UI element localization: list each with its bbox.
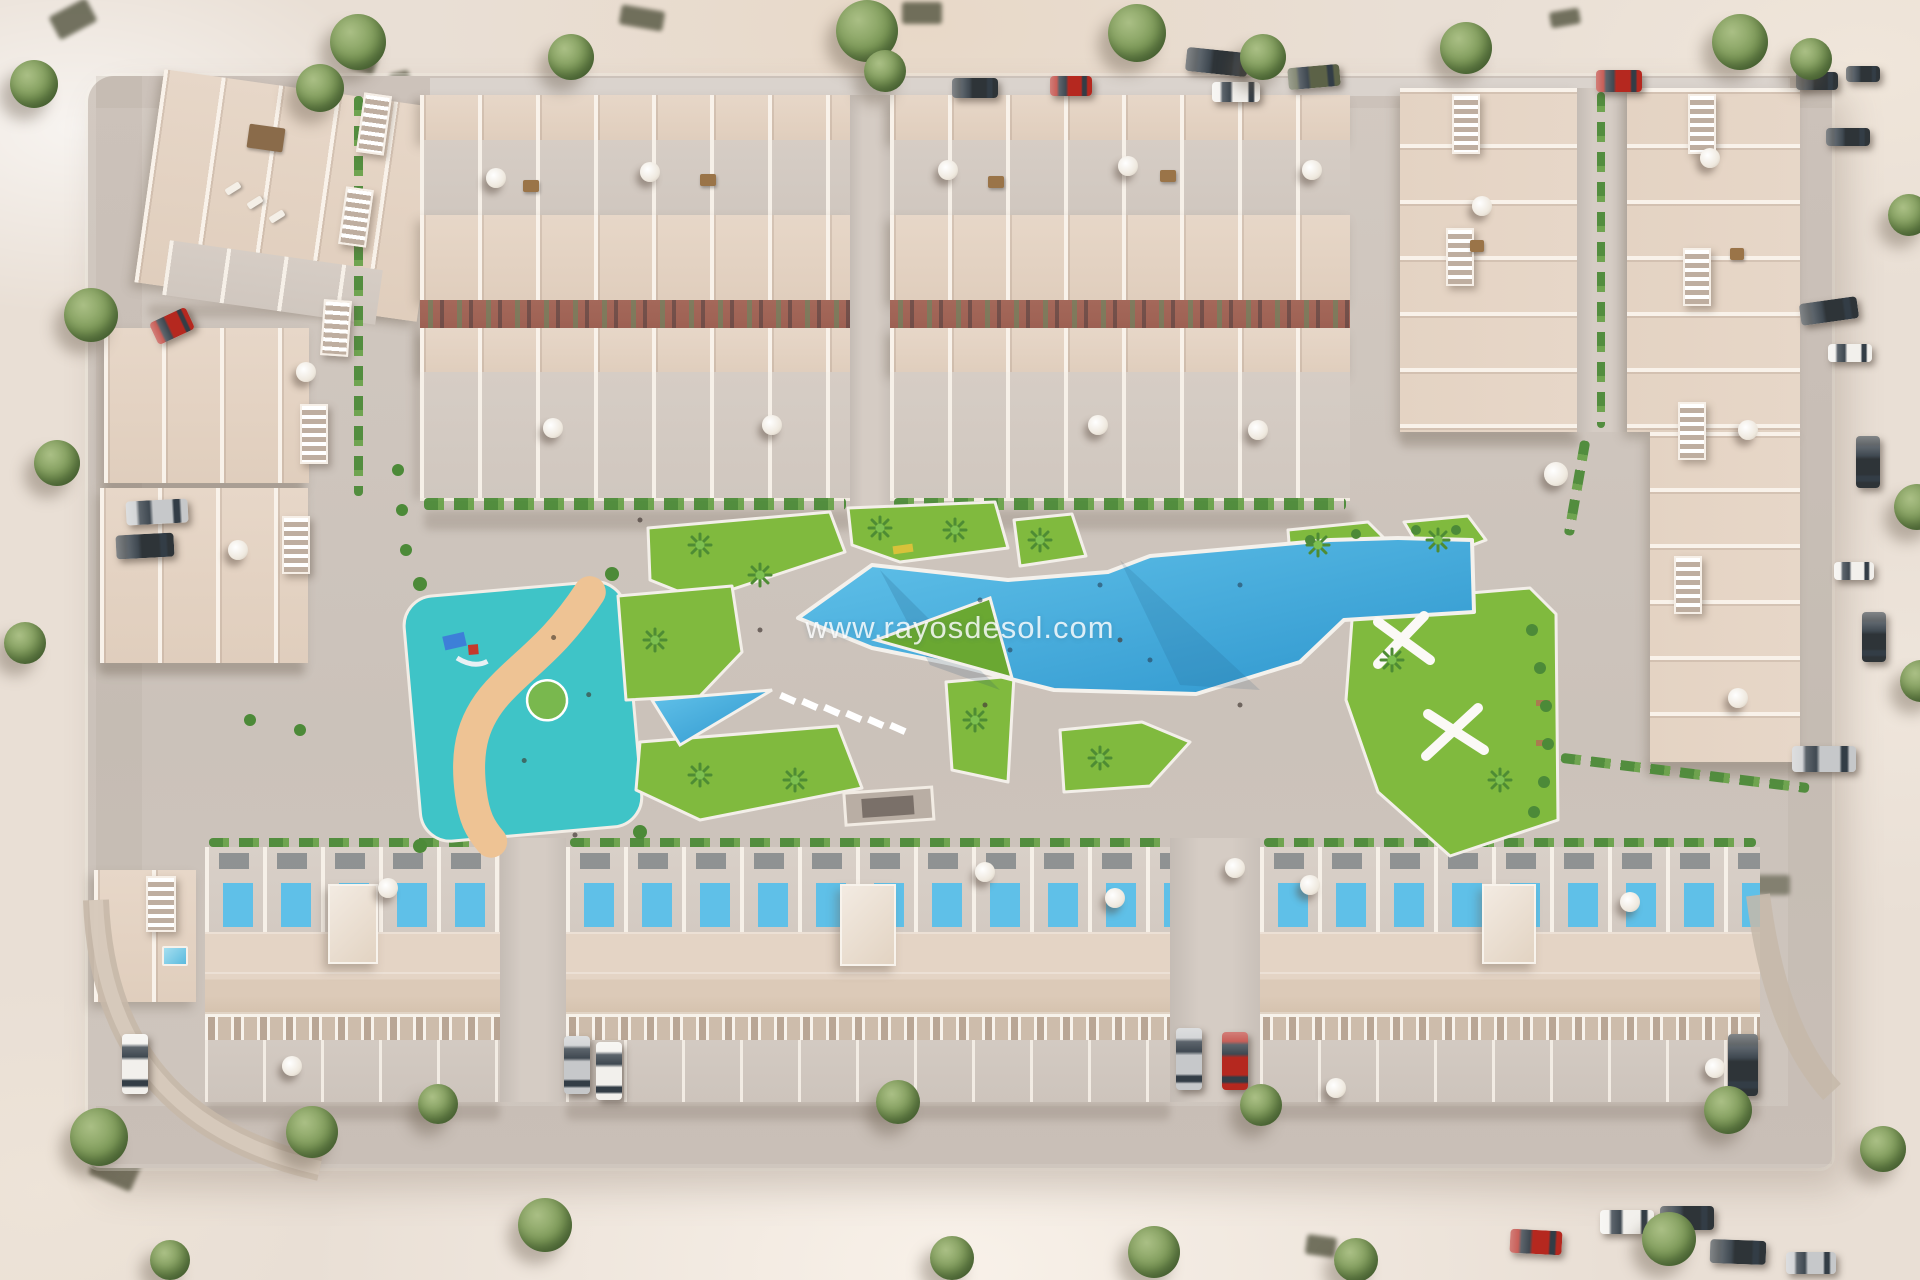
car [1509, 1229, 1562, 1256]
parasol [1700, 148, 1720, 168]
parasol [1300, 875, 1320, 895]
building-shadow [1260, 1102, 1760, 1120]
tree [864, 50, 906, 92]
tree [548, 34, 594, 80]
tree [1240, 34, 1286, 80]
townhouse-terrace-row [890, 140, 1350, 215]
car [1828, 344, 1872, 362]
car [1212, 82, 1260, 102]
parasol [1544, 462, 1568, 486]
car [115, 532, 174, 559]
car [1862, 612, 1886, 662]
roof-stairs [282, 516, 310, 574]
car [952, 78, 998, 98]
tree [1790, 38, 1832, 80]
car [1792, 746, 1856, 772]
roof-stairs [1683, 248, 1711, 306]
parasol [282, 1056, 302, 1076]
tree [10, 60, 58, 108]
parasol [975, 862, 995, 882]
car [596, 1042, 622, 1100]
tree [1334, 1238, 1378, 1280]
parasol [762, 415, 782, 435]
car [1826, 128, 1870, 146]
terrace-table [988, 176, 1004, 188]
tree [1642, 1212, 1696, 1266]
parasol [296, 362, 316, 382]
hedge-strip [1597, 92, 1605, 428]
terrace-table [1470, 240, 1484, 252]
car [1856, 436, 1880, 488]
car [125, 498, 188, 525]
roof-stairs [1446, 228, 1474, 286]
terrain-debris [1549, 8, 1581, 29]
roof-stairs [1678, 402, 1706, 460]
parasol [1326, 1078, 1346, 1098]
townhouse-roof-row [420, 328, 850, 372]
terrain-debris [619, 4, 666, 31]
car [122, 1034, 148, 1094]
parasol [1472, 196, 1492, 216]
tree [876, 1080, 920, 1124]
stair-tower [328, 884, 378, 964]
tree [418, 1084, 458, 1124]
car [1596, 70, 1642, 92]
car [1846, 66, 1880, 82]
roof-stairs [1688, 94, 1716, 154]
carport-strip [205, 1040, 500, 1102]
tree [1860, 1126, 1906, 1172]
car [1050, 76, 1092, 96]
parasol [1738, 420, 1758, 440]
parasol [1620, 892, 1640, 912]
car [1834, 562, 1874, 580]
parasol [378, 878, 398, 898]
terrace-table [700, 174, 716, 186]
townhouse-terrace-row [420, 140, 850, 215]
building-shadow [566, 1102, 1170, 1120]
townhouse-roof-row [420, 95, 850, 140]
hedge-alley [354, 96, 363, 496]
hedge-strip [894, 498, 1346, 510]
tree [70, 1108, 128, 1166]
tree [4, 622, 46, 664]
render-canvas: www.rayosdesol.com [0, 0, 1920, 1280]
townhouse-facade-band [890, 300, 1350, 328]
tree [1240, 1084, 1282, 1126]
parasol [1225, 858, 1245, 878]
townhouse-column [1650, 432, 1800, 762]
rooftop-plunge-pool [162, 946, 188, 966]
building-shadow [894, 510, 1354, 530]
terrace-table [523, 180, 539, 192]
townhouse-facade-band [420, 300, 850, 328]
access-street [500, 838, 566, 1102]
roof-stairs [1674, 556, 1702, 614]
tree [64, 288, 118, 342]
hedge-strip [209, 838, 496, 847]
tree [1712, 14, 1768, 70]
terrace-table [1160, 170, 1176, 182]
tree [296, 64, 344, 112]
parasol [228, 540, 248, 560]
tree [1128, 1226, 1180, 1278]
roof-stairs [146, 876, 176, 932]
parasol [640, 162, 660, 182]
tree [1900, 660, 1920, 702]
tree [1108, 4, 1166, 62]
carport-strip [566, 1040, 1170, 1102]
tree [930, 1236, 974, 1280]
car [1287, 64, 1341, 90]
parasol [1118, 156, 1138, 176]
tree [1440, 22, 1492, 74]
terrain-debris [48, 0, 97, 40]
pedestrian-alley [850, 95, 890, 510]
parasol [1248, 420, 1268, 440]
tree [330, 14, 386, 70]
townhouse-terrace-row [890, 372, 1350, 501]
car [1786, 1252, 1836, 1274]
parasol [1705, 1058, 1725, 1078]
watermark-text: www.rayosdesol.com [805, 610, 1114, 646]
parasol [543, 418, 563, 438]
tree [518, 1198, 572, 1252]
tree [1888, 194, 1920, 236]
townhouse-roof-row [890, 95, 1350, 140]
parasol [1728, 688, 1748, 708]
townhouse-column [1400, 88, 1577, 432]
parasol [1088, 415, 1108, 435]
building-shadow [1400, 432, 1580, 448]
building-shadow [424, 510, 854, 530]
tree [286, 1106, 338, 1158]
car [1222, 1032, 1248, 1090]
roof-pergola [247, 124, 286, 153]
car [1710, 1239, 1767, 1265]
townhouse-roof-row [890, 215, 1350, 300]
townhouse-roof-row [890, 328, 1350, 372]
roof-stairs [320, 299, 352, 357]
roof-stairs [300, 404, 328, 464]
hedge-strip [424, 498, 846, 510]
parasol [938, 160, 958, 180]
townhouse-roof-row [420, 215, 850, 300]
corner-building [94, 870, 196, 1002]
parasol [1302, 160, 1322, 180]
parasol [1105, 888, 1125, 908]
car [1185, 47, 1249, 77]
hedge-strip [1264, 838, 1756, 847]
car [564, 1036, 590, 1094]
stair-tower [840, 884, 896, 966]
parasol [486, 168, 506, 188]
tree [1704, 1086, 1752, 1134]
townhouse-terrace-row [420, 372, 850, 501]
car [1176, 1028, 1202, 1090]
terrain-debris [1305, 1234, 1337, 1258]
building-shadow [100, 664, 305, 676]
tree [1894, 484, 1920, 530]
roof-stairs [1452, 94, 1480, 154]
terrain-debris [902, 2, 942, 24]
hedge-strip [570, 838, 1166, 847]
tree [150, 1240, 190, 1280]
tree [34, 440, 80, 486]
stair-tower [1482, 884, 1536, 964]
apartment-block [104, 328, 309, 483]
terrace-table [1730, 248, 1744, 260]
